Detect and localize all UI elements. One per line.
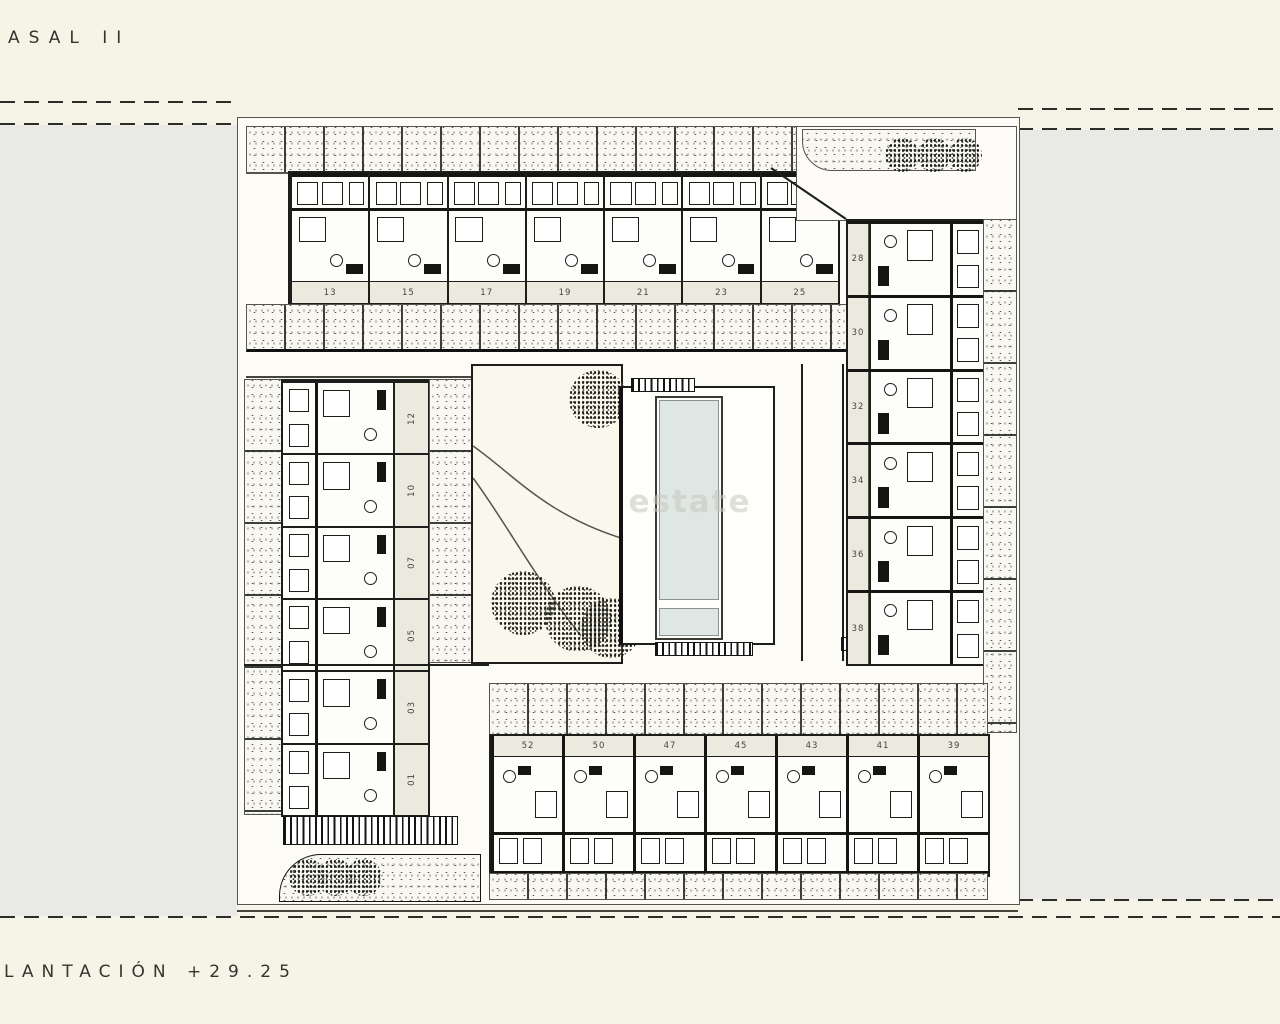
townhouse-unit: 36	[848, 516, 985, 590]
unit-floorplan	[283, 600, 395, 670]
unit-floorplan	[283, 455, 395, 525]
unit-floorplan	[869, 445, 985, 516]
unit-number: 19	[527, 281, 603, 303]
corridor-line	[244, 664, 489, 666]
unit-floorplan	[869, 298, 985, 369]
unit-floorplan	[449, 173, 525, 281]
corridor-line	[842, 364, 844, 661]
watermark: estate	[540, 484, 840, 520]
unit-number: 01	[395, 745, 428, 815]
unit-floorplan	[283, 528, 395, 598]
townhouse-unit: 50	[562, 736, 633, 875]
unit-number: 28	[848, 224, 869, 295]
unit-number: 43	[778, 736, 846, 757]
townhouse-unit: 13	[290, 173, 368, 303]
unit-floorplan	[869, 593, 985, 664]
pergola-hatch	[631, 378, 695, 392]
boundary-line	[1018, 899, 1280, 901]
unit-floorplan	[283, 745, 395, 815]
bottom-row-units: 52 50 47	[489, 734, 990, 877]
unit-floorplan	[292, 173, 368, 281]
right-margin-area	[1020, 130, 1280, 899]
unit-number: 41	[849, 736, 917, 757]
unit-number: 07	[395, 528, 428, 598]
townhouse-unit: 05	[283, 598, 428, 670]
townhouse-unit: 41	[846, 736, 917, 875]
unit-floorplan	[778, 757, 846, 875]
ramp-line	[769, 164, 849, 222]
bottom-garden-strip	[489, 683, 988, 736]
townhouse-unit: 23	[681, 173, 759, 303]
townhouse-unit: 43	[775, 736, 846, 875]
left-inner-garden-strip	[429, 379, 473, 663]
plan-level-label: LANTACIÓN +29.25	[4, 962, 298, 982]
top-row-units: 13 15 17	[288, 171, 840, 305]
unit-number: 23	[683, 281, 759, 303]
unit-number: 50	[565, 736, 633, 757]
unit-floorplan	[565, 757, 633, 875]
bottom-under-garden-strip	[489, 873, 988, 900]
townhouse-unit: 15	[368, 173, 446, 303]
unit-floorplan	[683, 173, 759, 281]
pool-splash-section	[659, 608, 719, 636]
unit-floorplan	[283, 672, 395, 742]
unit-number: 36	[848, 519, 869, 590]
unit-floorplan	[283, 383, 395, 453]
unit-number: 21	[605, 281, 681, 303]
unit-floorplan	[494, 757, 562, 875]
unit-number: 45	[707, 736, 775, 757]
townhouse-unit: 21	[603, 173, 681, 303]
townhouse-unit: 17	[447, 173, 525, 303]
boundary-line	[0, 101, 237, 103]
left-margin-area	[0, 125, 237, 916]
unit-floorplan	[869, 224, 985, 295]
unit-number: 25	[762, 281, 838, 303]
tree-icon	[885, 138, 919, 172]
townhouse-unit: 47	[633, 736, 704, 875]
tree-icon	[345, 859, 382, 896]
pergola-hatch	[655, 642, 753, 656]
unit-floorplan	[869, 519, 985, 590]
unit-number: 47	[636, 736, 704, 757]
left-column-units: 12 10 07	[281, 379, 430, 817]
townhouse-unit: 34	[848, 442, 985, 516]
top-garden-strip	[246, 126, 840, 174]
townhouse-unit: 32	[848, 369, 985, 443]
unit-floorplan	[869, 372, 985, 443]
unit-number: 03	[395, 672, 428, 742]
unit-number: 15	[370, 281, 446, 303]
unit-number: 39	[920, 736, 988, 757]
boundary-line	[237, 910, 1018, 912]
corridor-line	[246, 376, 471, 378]
unit-number: 34	[848, 445, 869, 516]
right-column-units: 28 30 32	[846, 219, 987, 666]
unit-number: 38	[848, 593, 869, 664]
unit-floorplan	[849, 757, 917, 875]
boundary-line	[0, 916, 1280, 918]
townhouse-unit: 52	[491, 736, 562, 875]
unit-number: 17	[449, 281, 525, 303]
right-edge-garden-strip	[983, 219, 1017, 733]
bottom-left-planting-bed	[279, 854, 481, 902]
townhouse-unit: 38	[848, 590, 985, 664]
left-edge-garden-strip	[244, 379, 283, 815]
townhouse-unit: 01	[283, 743, 428, 815]
tree-icon	[917, 138, 951, 172]
unit-floorplan	[920, 757, 988, 875]
townhouse-unit: 28	[848, 221, 985, 295]
townhouse-unit: 12	[283, 381, 428, 453]
unit-floorplan	[527, 173, 603, 281]
townhouse-unit: 03	[283, 670, 428, 742]
boundary-line	[1018, 108, 1280, 110]
townhouse-unit: 10	[283, 453, 428, 525]
unit-floorplan	[605, 173, 681, 281]
unit-floorplan	[707, 757, 775, 875]
drawing-title: ASAL II	[8, 28, 130, 48]
unit-floorplan	[636, 757, 704, 875]
unit-number: 30	[848, 298, 869, 369]
unit-number: 10	[395, 455, 428, 525]
unit-number: 13	[292, 281, 368, 303]
unit-floorplan	[370, 173, 446, 281]
townhouse-unit: 45	[704, 736, 775, 875]
townhouse-unit: 07	[283, 526, 428, 598]
townhouse-unit: 39	[917, 736, 988, 875]
unit-number: 32	[848, 372, 869, 443]
architectural-drawing-page: { "page": { "title": "ASAL II", "plan_la…	[0, 0, 1280, 1024]
pergola-strip	[283, 816, 458, 845]
townhouse-unit: 30	[848, 295, 985, 369]
tree-icon	[948, 138, 982, 172]
unit-number: 52	[494, 736, 562, 757]
townhouse-unit: 19	[525, 173, 603, 303]
unit-number: 05	[395, 600, 428, 670]
unit-number: 12	[395, 383, 428, 453]
